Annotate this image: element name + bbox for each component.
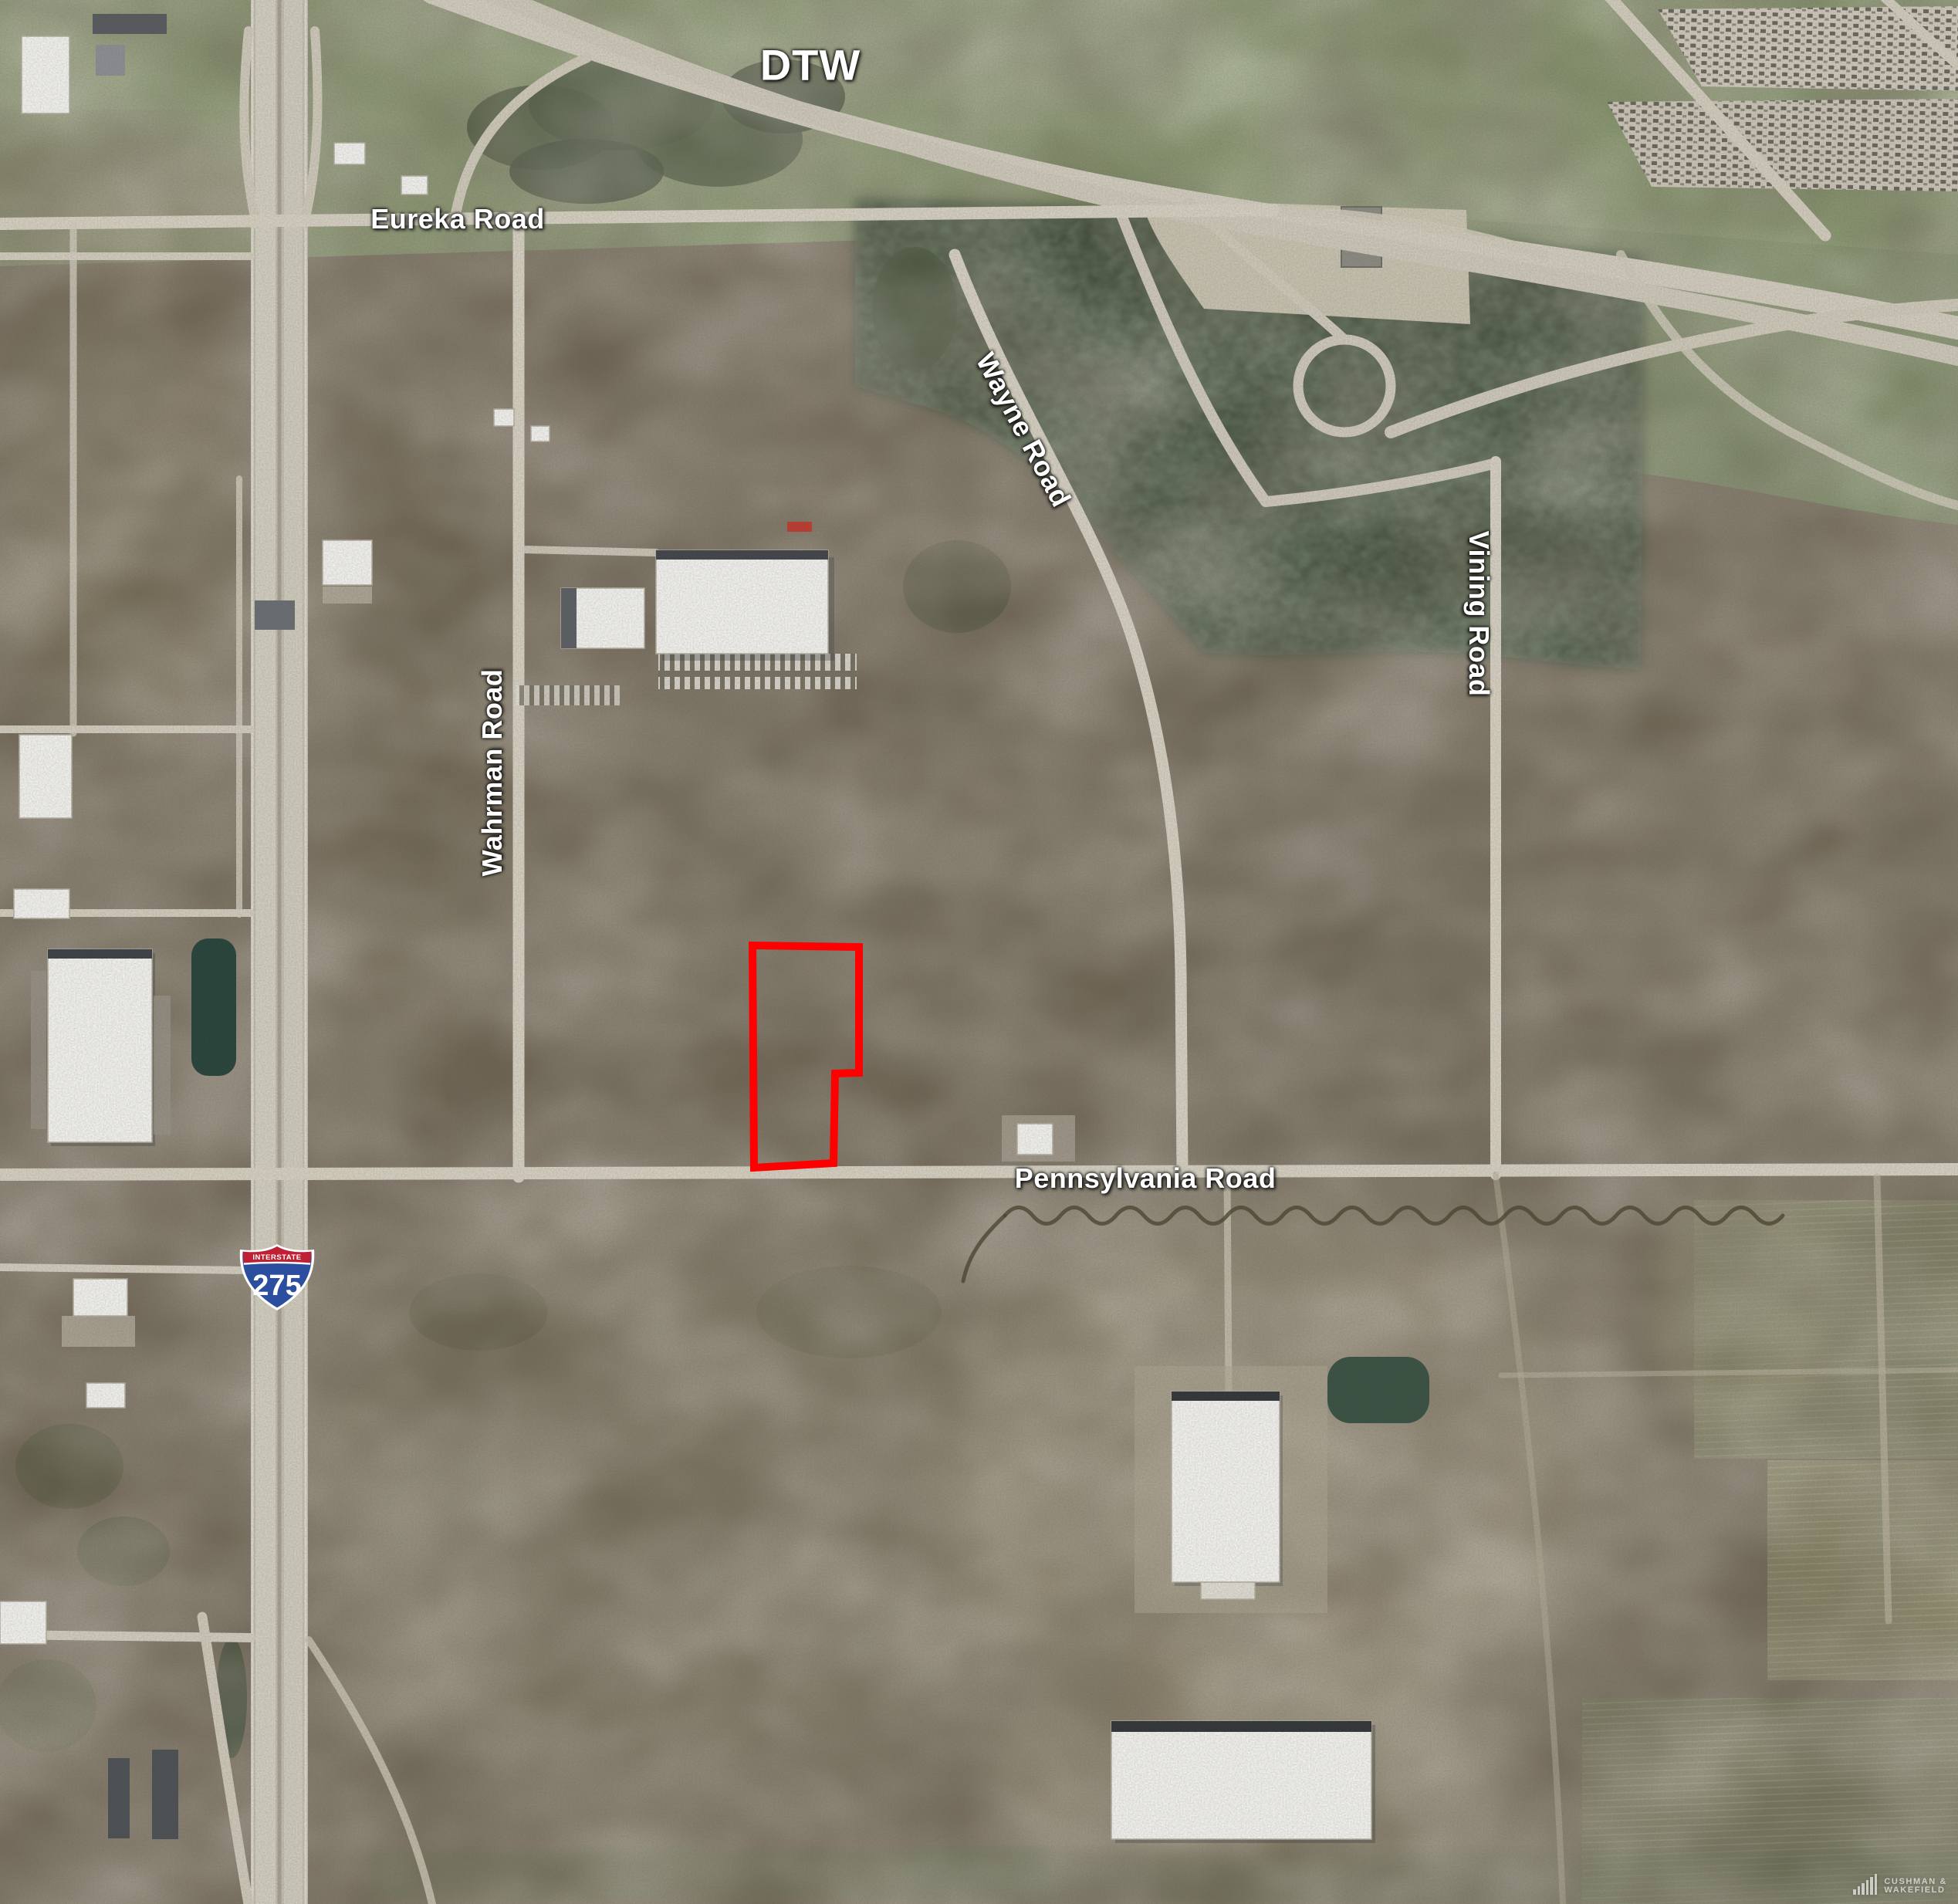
satellite-basemap: INTERSTATE 275	[0, 0, 1958, 1904]
watermark-text: CUSHMAN & WAKEFIELD	[1884, 1878, 1947, 1895]
dtw-airport-label: DTW	[760, 40, 861, 90]
eureka-road-label: Eureka Road	[370, 203, 545, 235]
pennsylvania-road-label: Pennsylvania Road	[1015, 1162, 1277, 1195]
interstate-shield-number: 275	[252, 1270, 301, 1302]
watermark-logo-icon	[1853, 1874, 1877, 1895]
cushman-wakefield-watermark: CUSHMAN & WAKEFIELD	[1853, 1874, 1947, 1895]
watermark-line2: WAKEFIELD	[1884, 1885, 1945, 1895]
vining-road-label: Vining Road	[1463, 531, 1495, 697]
interstate-shield-header: INTERSTATE	[252, 1253, 301, 1262]
wahrman-road-label: Wahrman Road	[476, 669, 509, 877]
aerial-site-map: INTERSTATE 275 DTW Eureka Road Wayne Roa…	[0, 0, 1958, 1904]
